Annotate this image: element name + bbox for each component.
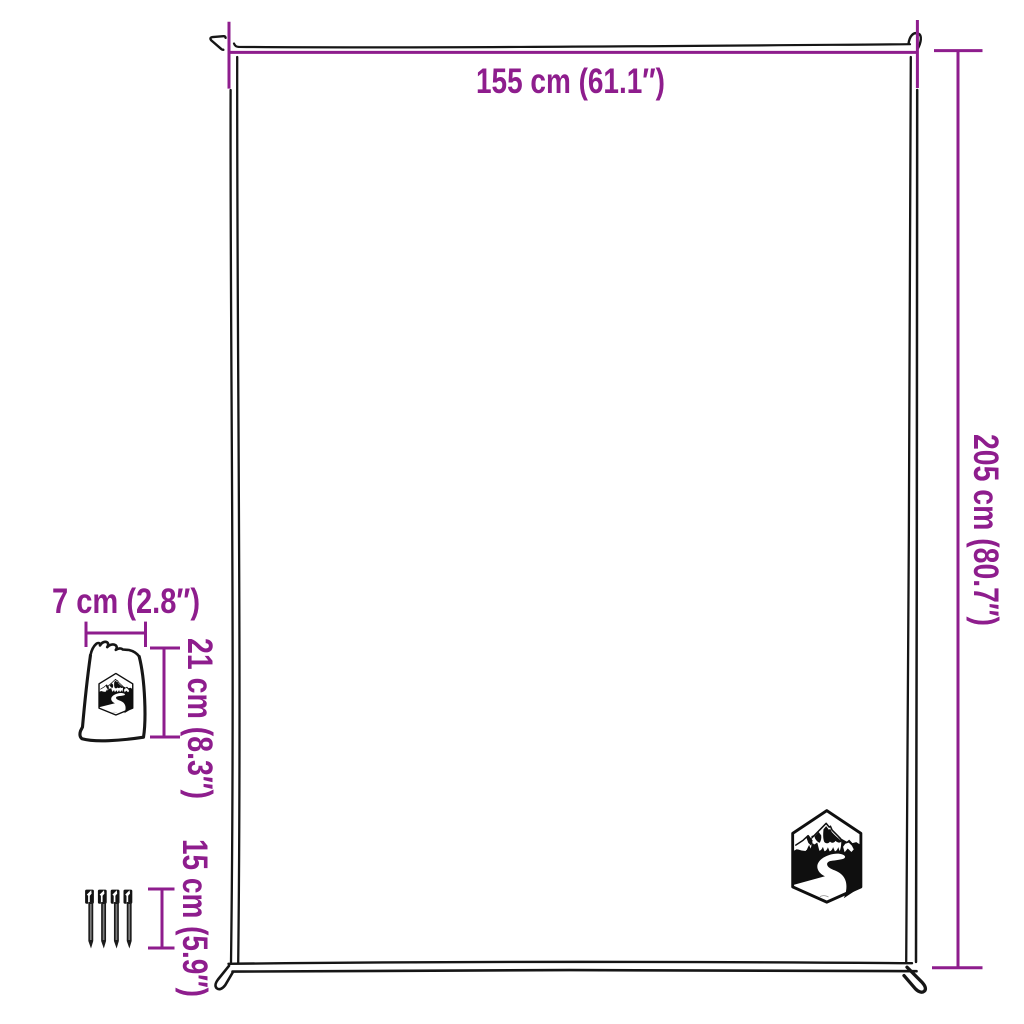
svg-text:15 cm (5.9″): 15 cm (5.9″) [175, 839, 214, 997]
svg-text:155 cm (61.1″): 155 cm (61.1″) [476, 62, 665, 101]
svg-text:7 cm (2.8″): 7 cm (2.8″) [52, 582, 200, 621]
svg-text:21 cm (8.3″): 21 cm (8.3″) [180, 638, 219, 799]
svg-text:205 cm (80.7″): 205 cm (80.7″) [966, 434, 1005, 626]
